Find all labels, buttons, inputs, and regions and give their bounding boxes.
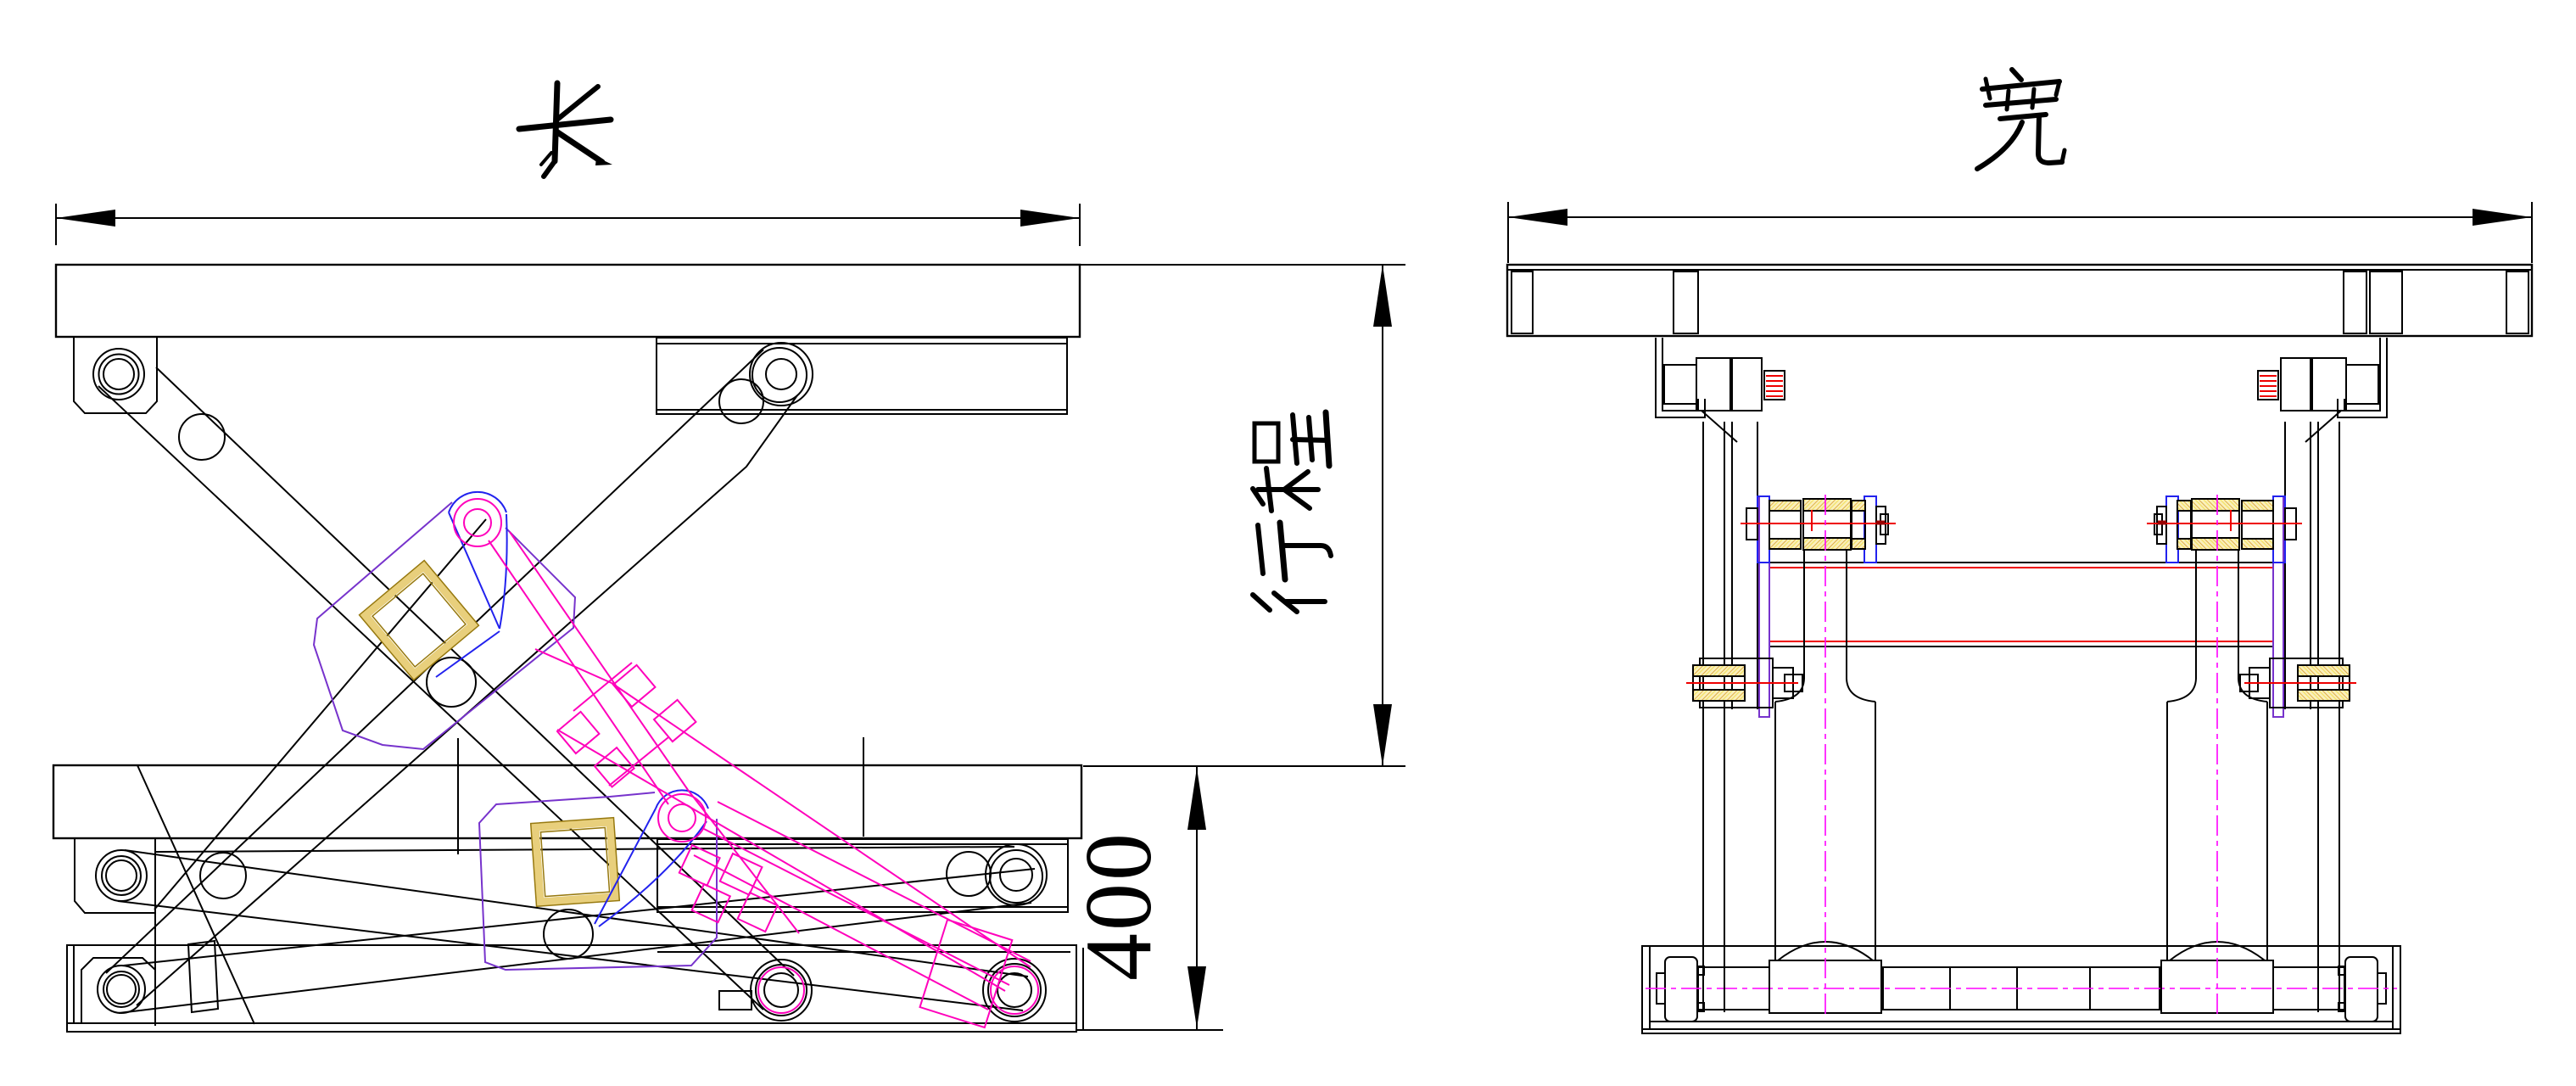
svg-text:400: 400 (1066, 831, 1171, 981)
